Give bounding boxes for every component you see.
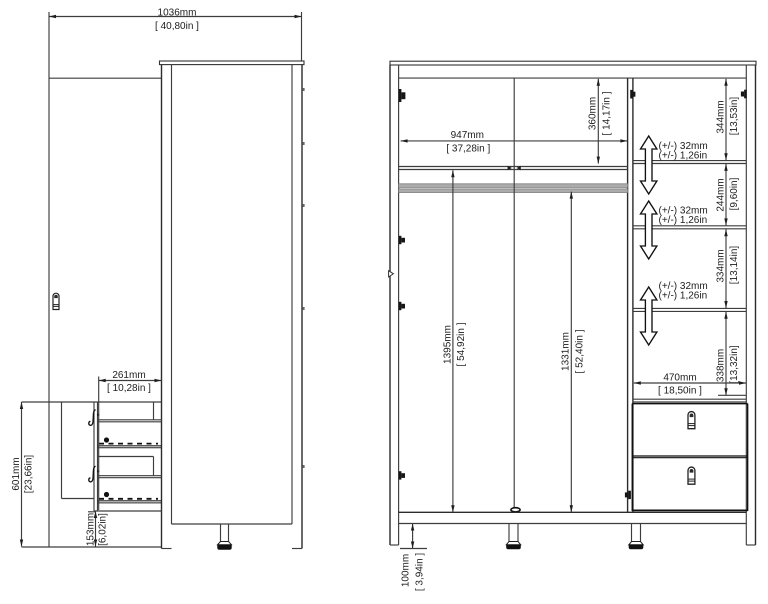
- svg-text:[23,66in]: [23,66in]: [24, 455, 35, 494]
- svg-text:338mm: 338mm: [715, 349, 726, 382]
- svg-text:[ 3,94in ]: [ 3,94in ]: [414, 553, 425, 592]
- svg-text:1036mm: 1036mm: [158, 7, 197, 18]
- svg-text:947mm: 947mm: [451, 130, 484, 141]
- svg-text:[ 40,80in ]: [ 40,80in ]: [155, 21, 199, 32]
- svg-text:344mm: 344mm: [715, 100, 726, 133]
- svg-text:[ 54,92in ]: [ 54,92in ]: [456, 322, 467, 366]
- svg-text:(+/-) 1,26in: (+/-) 1,26in: [659, 151, 708, 162]
- svg-text:601mm: 601mm: [11, 457, 22, 490]
- svg-text:470mm: 470mm: [663, 372, 696, 383]
- svg-text:100mm: 100mm: [400, 554, 411, 587]
- svg-text:153mm: 153mm: [86, 513, 97, 546]
- svg-text:(+/-) 1,26in: (+/-) 1,26in: [659, 215, 708, 226]
- svg-text:1395mm: 1395mm: [442, 325, 453, 364]
- svg-text:[9,60in]: [9,60in]: [729, 177, 740, 210]
- svg-text:1331mm: 1331mm: [561, 332, 572, 371]
- svg-text:[13,32in]: [13,32in]: [729, 345, 740, 384]
- svg-text:244mm: 244mm: [715, 178, 726, 211]
- svg-text:[ 14,17in ]: [ 14,17in ]: [601, 91, 612, 135]
- svg-text:[6,02in]: [6,02in]: [98, 513, 109, 546]
- svg-text:261mm: 261mm: [112, 370, 145, 381]
- svg-text:[ 52,40in ]: [ 52,40in ]: [574, 329, 585, 373]
- svg-text:[ 37,28in ]: [ 37,28in ]: [446, 143, 490, 154]
- svg-text:[ 10,28in ]: [ 10,28in ]: [107, 383, 151, 394]
- svg-text:[ 18,50in ]: [ 18,50in ]: [658, 386, 702, 397]
- svg-text:[13,53in]: [13,53in]: [729, 97, 740, 136]
- svg-text:[13,14in]: [13,14in]: [729, 246, 740, 285]
- svg-text:334mm: 334mm: [715, 249, 726, 282]
- svg-text:(+/-) 1,26in: (+/-) 1,26in: [659, 291, 708, 302]
- svg-text:360mm: 360mm: [588, 97, 599, 130]
